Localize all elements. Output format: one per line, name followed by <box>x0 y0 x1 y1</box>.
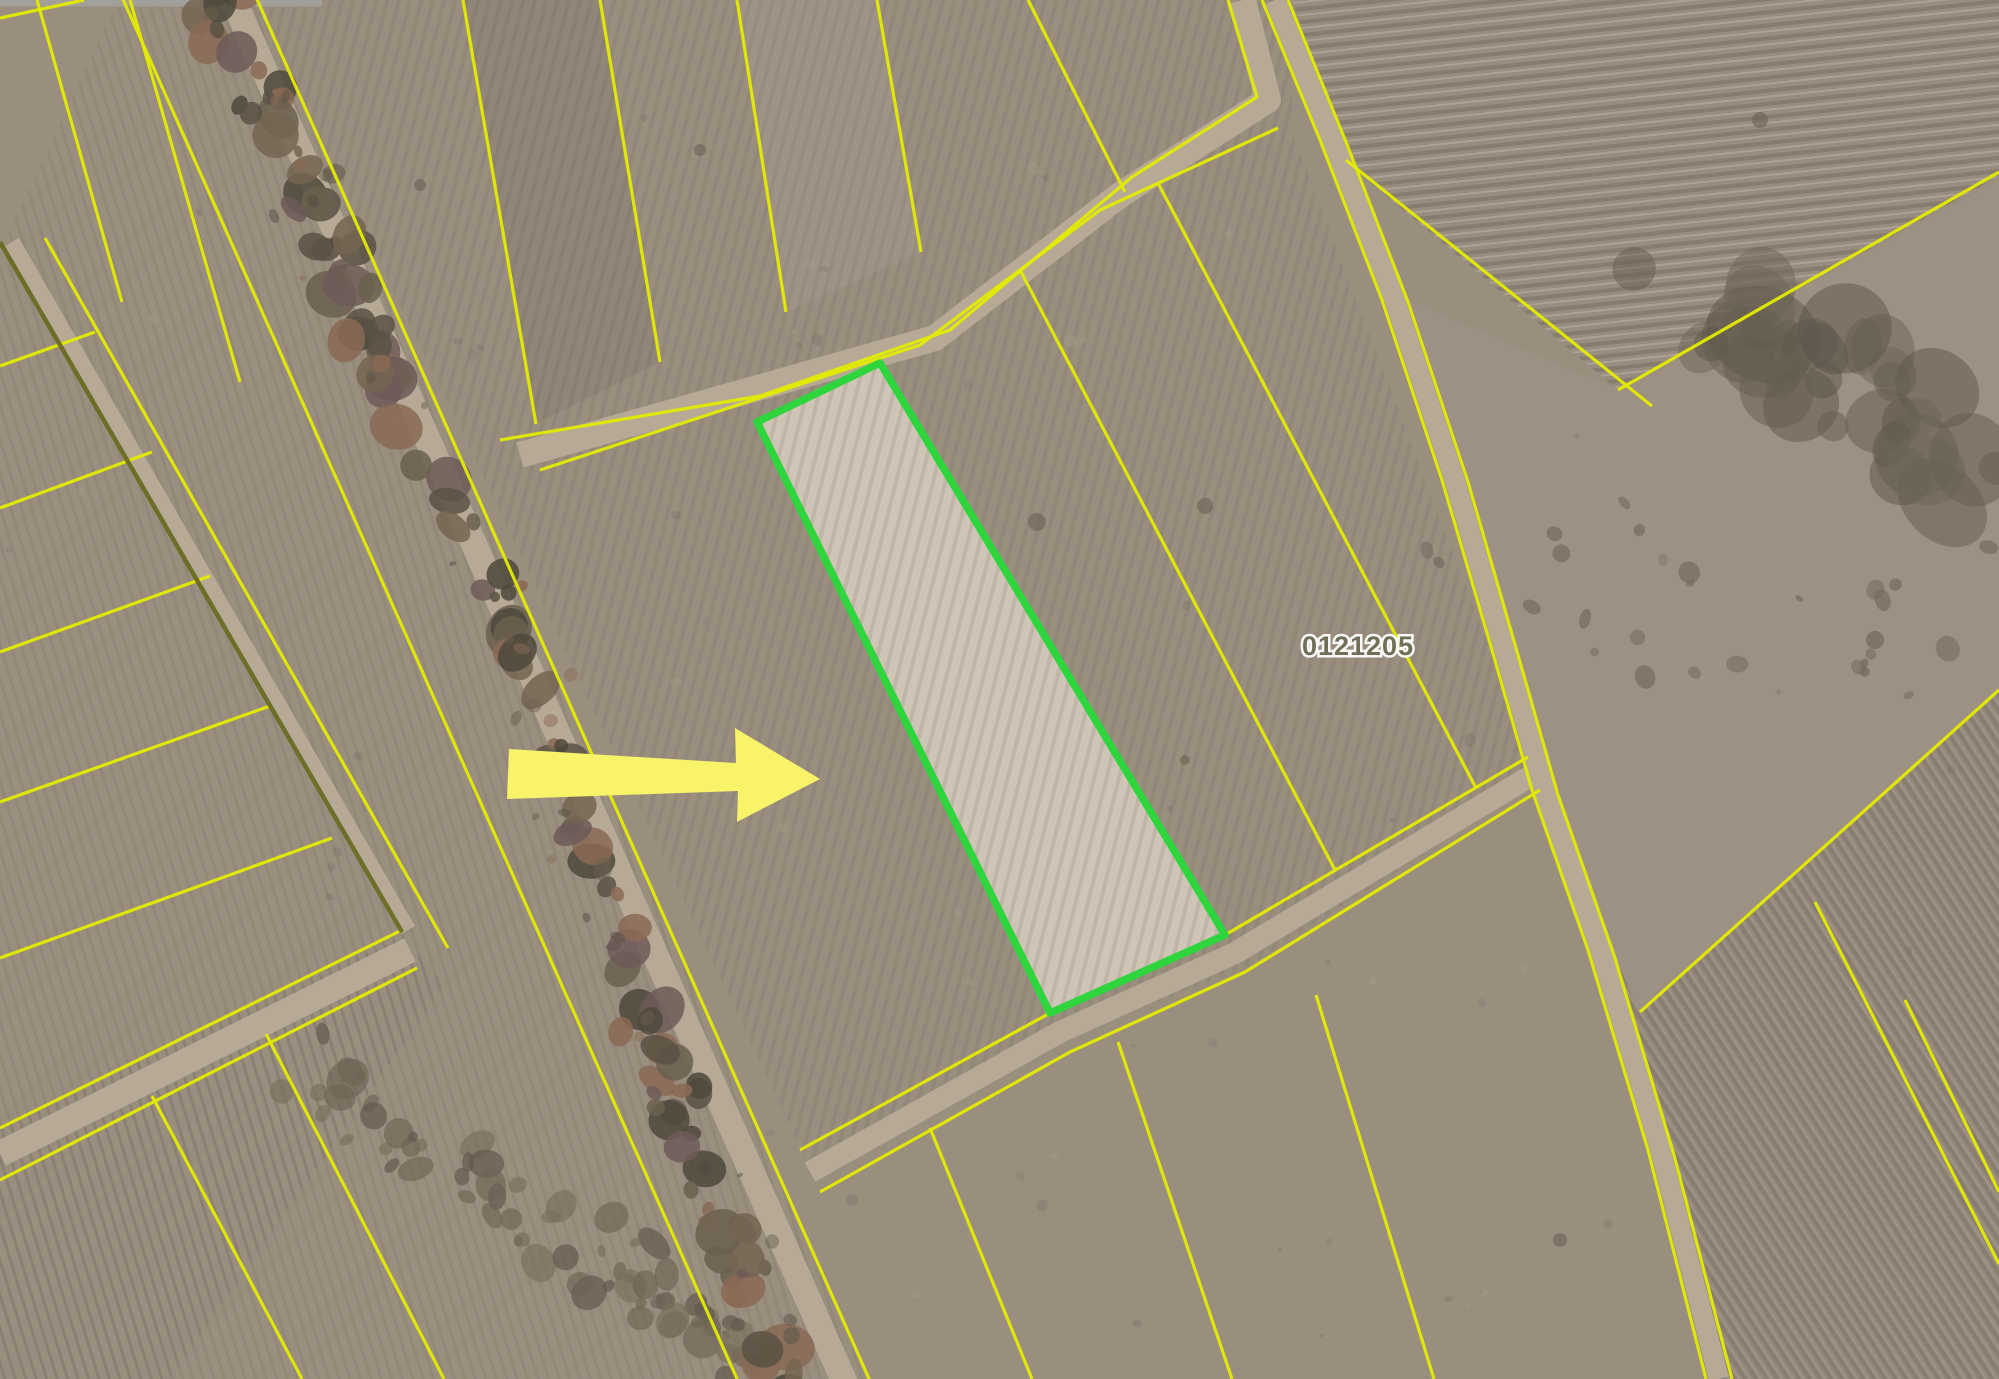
bush-shadow <box>1028 513 1046 531</box>
bush-shadow <box>694 144 706 156</box>
bush-shadow <box>1553 1233 1567 1247</box>
bush-shadow <box>1197 498 1213 514</box>
bush-shadow <box>1752 112 1768 128</box>
bush-shadow <box>1866 631 1884 649</box>
bush-shadow <box>414 179 426 191</box>
bush-shadow <box>1180 755 1190 765</box>
parcel-id-label: 0121205 <box>1302 631 1414 661</box>
satellite-map[interactable]: 0121205 <box>0 0 1999 1379</box>
satellite-map-svg[interactable]: 0121205 <box>0 0 1999 1379</box>
